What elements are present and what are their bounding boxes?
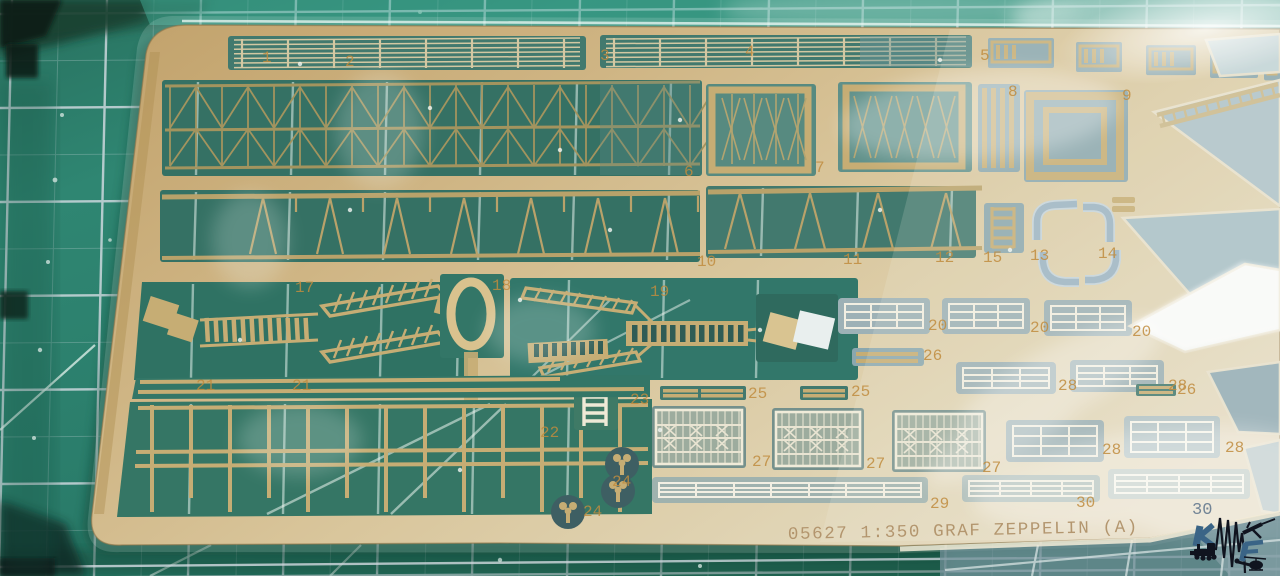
svg-text:15: 15 — [983, 249, 1002, 267]
svg-text:20: 20 — [928, 317, 947, 335]
svg-text:24: 24 — [583, 503, 602, 521]
svg-text:23: 23 — [630, 391, 649, 409]
svg-text:30: 30 — [1192, 501, 1212, 520]
svg-text:9: 9 — [1122, 87, 1132, 105]
svg-text:3: 3 — [600, 47, 610, 65]
svg-text:13: 13 — [1030, 247, 1049, 265]
svg-text:27: 27 — [982, 459, 1001, 477]
svg-text:25: 25 — [748, 385, 767, 403]
svg-text:2: 2 — [345, 53, 355, 71]
svg-text:21: 21 — [292, 377, 311, 395]
svg-text:28: 28 — [1102, 441, 1121, 459]
svg-text:6: 6 — [684, 163, 694, 181]
svg-text:27: 27 — [866, 455, 885, 473]
svg-text:19: 19 — [650, 283, 669, 301]
svg-text:1: 1 — [262, 49, 272, 67]
svg-text:12: 12 — [935, 249, 954, 267]
svg-text:22: 22 — [540, 424, 559, 442]
svg-text:28: 28 — [1058, 377, 1077, 395]
svg-text:7: 7 — [815, 159, 825, 177]
svg-text:28: 28 — [1225, 439, 1244, 457]
svg-text:21: 21 — [196, 377, 215, 395]
svg-text:8: 8 — [1008, 83, 1018, 101]
svg-text:26: 26 — [923, 347, 942, 365]
svg-text:5: 5 — [980, 47, 990, 65]
svg-text:25: 25 — [851, 383, 870, 401]
svg-text:30: 30 — [1076, 494, 1095, 512]
svg-text:17: 17 — [295, 279, 314, 297]
svg-text:20: 20 — [1132, 323, 1151, 341]
svg-text:28: 28 — [1168, 377, 1187, 395]
svg-text:14: 14 — [1098, 245, 1117, 263]
svg-text:11: 11 — [843, 251, 862, 269]
svg-text:10: 10 — [697, 253, 716, 271]
svg-text:4: 4 — [745, 43, 755, 61]
svg-text:27: 27 — [752, 453, 771, 471]
svg-text:20: 20 — [1030, 319, 1049, 337]
svg-text:29: 29 — [930, 495, 949, 513]
svg-text:24: 24 — [612, 473, 631, 491]
svg-text:18: 18 — [492, 277, 511, 295]
